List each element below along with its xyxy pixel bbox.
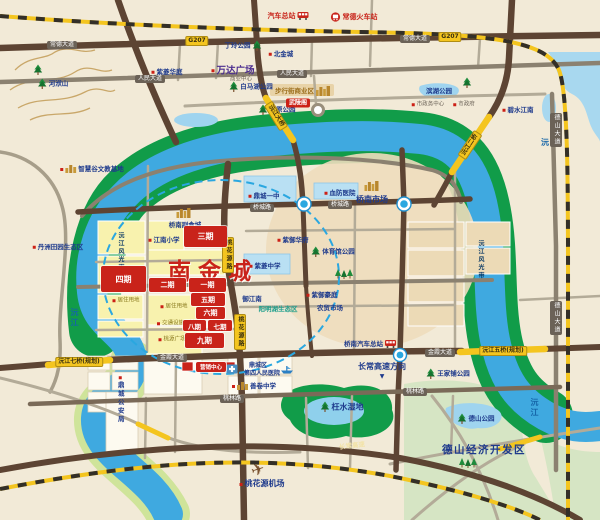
map-label: 河洑山 — [38, 79, 69, 90]
map-label: 鼎城公安局 — [117, 376, 124, 424]
bridge-plate: 沅江五桥(规划) — [479, 346, 527, 356]
label-text: 智慧谷文教基地 — [78, 166, 124, 173]
arrow-down-icon: ▼ — [380, 374, 385, 380]
building-icon — [65, 165, 76, 173]
tree-icon — [253, 41, 262, 52]
poi-dot — [119, 376, 122, 379]
road-plate: 金霞大道 — [157, 354, 187, 362]
label-text: 长常高速方向 — [358, 363, 406, 371]
label-text: 德山大道 — [553, 114, 559, 146]
trees-icon — [335, 269, 353, 279]
road-plate: 常德大道 — [400, 35, 430, 43]
label-text: 常德大道 — [403, 36, 427, 42]
poi-dot — [33, 246, 36, 249]
poi-dot — [249, 195, 252, 198]
label-text: 桃源广场 — [163, 337, 185, 343]
label-text: 德山公园 — [469, 416, 495, 423]
tree-icon — [321, 402, 330, 413]
map-label: 江南小学 — [149, 237, 180, 244]
tree-icon — [311, 247, 320, 258]
hospital-icon — [227, 365, 238, 374]
poi-dot — [250, 265, 253, 268]
label-text: 鼎城公安局 — [117, 381, 124, 424]
label-text: 阳明湖生态区 — [259, 306, 298, 313]
phase-block: 五期 — [191, 293, 225, 306]
road-plate: 桃林路 — [220, 395, 244, 403]
label-text: 丁玲公园 — [225, 43, 251, 50]
poi-dot — [157, 323, 160, 326]
road-plate: 德山大道 — [550, 301, 562, 335]
map-label: 丁玲公园 — [225, 41, 262, 52]
label-text: 丹洲田园生态区 — [38, 244, 84, 251]
tree-icon — [34, 65, 43, 76]
bridge-plate: 沅江二桥 — [457, 130, 482, 160]
tree-icon — [229, 82, 238, 93]
road-plate: 德山大道 — [550, 113, 562, 147]
trees-icon — [335, 269, 353, 279]
label-text: 沅江五桥(规划) — [482, 348, 524, 354]
label-text: 常德大道 — [50, 42, 74, 48]
label-text: 桥城路 — [253, 205, 271, 211]
label-text: G207 — [188, 38, 205, 44]
road-plate: G207 — [438, 32, 461, 42]
map-labels-layer: 汽车总站常德火车站丁玲公园北金城万达广场商业中心紫菱华庭白马湖公园屈原公园河洑山… — [0, 0, 600, 520]
label-text: 鼎城区 — [249, 363, 267, 369]
railway-station-label: 常德火车站 — [331, 12, 378, 22]
poi-dot — [412, 104, 415, 107]
map-label: 紫菱中学 — [250, 263, 281, 270]
label-text: 滨湖公园 — [426, 88, 452, 95]
poi-dot — [60, 168, 63, 171]
map-label: 桃源广场 — [158, 337, 185, 343]
label-text: 桥南市场 — [356, 196, 388, 204]
skyline-gold-icon — [177, 208, 192, 218]
map-label: 北金城 — [269, 51, 294, 58]
label-text: 沅江二桥 — [461, 133, 479, 156]
poi-dot — [269, 53, 272, 56]
label-text: 居住用地 — [117, 298, 139, 304]
label-text: 沅江风光带 — [477, 240, 483, 280]
bus-icon — [385, 340, 396, 348]
label-text: 金霞大道 — [428, 350, 452, 356]
road-plate: 桥城路 — [328, 201, 352, 209]
tree-icon — [458, 414, 467, 425]
label-text: 桃林路 — [406, 389, 424, 395]
building-icon — [237, 382, 248, 390]
road-plate: 桥城路 — [250, 204, 274, 212]
label-text: 武陵阁 — [289, 100, 307, 106]
bus-terminal-label: 汽车总站 — [268, 12, 309, 20]
road-plate: 桃林路 — [403, 388, 427, 396]
phase-block: 一期 — [189, 278, 226, 292]
road-plate: 人民大道 — [277, 70, 307, 78]
poi-dot — [232, 385, 235, 388]
label-text: 紫御豪庭 — [312, 292, 338, 299]
phase-block: 二期 — [149, 278, 186, 292]
poi-dot — [278, 239, 281, 242]
trees-icon — [459, 458, 477, 468]
map-label: 紫御豪庭 — [307, 292, 338, 299]
label-text: 人民大道 — [280, 71, 304, 77]
map-label: 御江南 — [242, 296, 262, 303]
river-label: 沅江 — [70, 308, 78, 328]
river-label: 沅江 — [530, 398, 538, 418]
map-label: 长常高速方向 — [358, 363, 406, 371]
map-label: 鼎城一中 — [249, 193, 280, 200]
label-text: 桥城路 — [331, 202, 349, 208]
road-plate: 桃花源路 — [234, 314, 246, 350]
label-text: 汽车总站 — [268, 13, 296, 20]
label-text: 长常高速 — [339, 441, 366, 451]
tree-icon — [463, 78, 472, 89]
label-text: 居住用地 — [165, 304, 187, 310]
label-text: 碧水江南 — [508, 107, 534, 114]
label-text: 江南小学 — [154, 237, 180, 244]
label-text: 沅江 — [530, 398, 538, 418]
map-label: 王家铺公园 — [426, 369, 470, 380]
ship-icon — [280, 366, 294, 375]
bus-icon — [298, 12, 309, 20]
poi-dot — [149, 239, 152, 242]
plane-icon: ✈ — [251, 462, 264, 478]
skyline-gold-icon — [365, 181, 380, 191]
phase-block: 七期 — [208, 320, 232, 331]
phase-block: 六期 — [196, 307, 225, 319]
poi-dot — [503, 109, 506, 112]
label-text: 沅江 — [70, 308, 78, 328]
label-text: 沅江七桥(规划) — [58, 359, 100, 365]
poi-dot — [240, 483, 243, 486]
tree-icon — [34, 65, 43, 76]
map-label: 桃花源机场 — [240, 480, 285, 488]
map-label: 鼎城区 — [249, 363, 267, 369]
map-label: 居住用地 — [160, 304, 187, 310]
train-icon — [331, 12, 341, 22]
label-text: 白马湖公园 — [240, 84, 273, 91]
phase-block: 九期 — [185, 333, 224, 348]
label-text: 人民大道 — [138, 76, 162, 82]
map-label: 滨湖公园 — [426, 88, 452, 95]
phase-block: 八期 — [183, 320, 206, 331]
poi-dot — [158, 339, 161, 342]
label-text: 常德火车站 — [343, 14, 378, 21]
label-text: 紫菱中学 — [255, 263, 281, 270]
map-label: 阳明湖生态区 — [259, 306, 298, 313]
plane-icon: ✈ — [251, 462, 264, 478]
map-label: 市政务中心 — [412, 102, 445, 108]
map-label: 德山公园 — [458, 414, 495, 425]
label-text: 桃花源机场 — [245, 480, 285, 488]
wanda-plaza-label: 万达广场 — [211, 66, 254, 76]
phase-block: 四期 — [101, 266, 146, 292]
poi-dot — [211, 70, 214, 73]
tree-icon — [463, 78, 472, 89]
hospital-icon — [227, 365, 238, 374]
map-label: 血防医院 — [325, 190, 356, 197]
expressway-label: 长常高速 — [339, 441, 366, 451]
phase-block: 三期 — [184, 226, 227, 247]
map-label: 碧水江南 — [503, 107, 534, 114]
map-label: 丹洲田园生态区 — [33, 244, 84, 251]
road-plate: 金霞大道 — [425, 349, 455, 357]
map-label: 德山经济开发区 — [442, 445, 526, 456]
map-label: 智慧谷文教基地 — [60, 165, 124, 173]
label-text: 河洑山 — [49, 81, 69, 88]
label-text: 桃林路 — [223, 396, 241, 402]
label-text: 紫御华府 — [283, 237, 309, 244]
poi-dot — [307, 294, 310, 297]
wulingge-chip: 武陵阁 — [286, 99, 310, 108]
road-plate: 常德大道 — [47, 41, 77, 49]
map-label: 步行街商业区 — [275, 86, 331, 96]
road-plate: 人民大道 — [135, 75, 165, 83]
ship-icon — [280, 366, 294, 375]
label-text: 血防医院 — [330, 190, 356, 197]
label-text: 金霞大道 — [160, 355, 184, 361]
label-text: 德山经济开发区 — [442, 445, 526, 456]
map-label: 第四人民医院 — [244, 371, 280, 377]
label-text: 体育馆公园 — [322, 249, 355, 256]
poi-dot — [152, 71, 155, 74]
label-text: 市政务中心 — [417, 102, 445, 108]
label-text: 善卷中学 — [250, 383, 276, 390]
map-label: 居住用地 — [112, 298, 139, 304]
label-text: 步行街商业区 — [275, 88, 314, 95]
label-text: 御江南 — [242, 296, 262, 303]
map-label: 市政府 — [453, 102, 475, 108]
bridge-plate: 沅江七桥(规划) — [55, 357, 103, 367]
tree-icon — [426, 369, 435, 380]
label-text: 农贸市场 — [317, 305, 343, 312]
poi-dot — [453, 104, 456, 107]
map-label: 农贸市场 — [317, 305, 343, 312]
road-plate: G207 — [185, 36, 208, 46]
label-text: 德山大道 — [553, 302, 559, 334]
label-text: 市政府 — [458, 102, 475, 108]
label-text: 枉水湿地 — [332, 403, 364, 411]
phase-block: 营销中心 — [196, 362, 226, 372]
map-label: 紫御华府 — [278, 237, 309, 244]
skyline-gold-icon — [177, 208, 192, 218]
map-label: 善卷中学 — [232, 382, 276, 390]
location-map: 南金城 汽车总站常德火车站丁玲公园北金城万达广场商业中心紫菱华庭白马湖公园屈原公… — [0, 0, 600, 520]
map-label: 体育馆公园 — [311, 247, 355, 258]
map-label: 白马湖公园 — [229, 82, 273, 93]
poi-dot — [325, 192, 328, 195]
label-text: 北金城 — [274, 51, 294, 58]
label-text: 鼎城一中 — [254, 193, 280, 200]
label-text: 第四人民医院 — [244, 371, 280, 377]
label-text: ▼ — [380, 374, 385, 380]
map-label: 枉水湿地 — [321, 402, 364, 413]
label-text: G207 — [441, 34, 458, 40]
label-text: 桃花源路 — [237, 316, 243, 348]
poi-dot — [112, 300, 115, 303]
poi-dot — [160, 306, 163, 309]
skyline-gold-icon — [316, 86, 331, 96]
tree-icon — [38, 79, 47, 90]
map-label: 沅江风光带 — [477, 240, 483, 280]
map-label: 桥南汽车总站 — [344, 340, 396, 348]
label-text: 桥南汽车总站 — [344, 341, 383, 348]
trees-icon — [459, 458, 477, 468]
skyline-gold-icon — [365, 181, 380, 191]
label-text: 万达广场 — [216, 66, 254, 76]
map-label: 桥南市场 — [356, 196, 388, 204]
label-text: 王家铺公园 — [437, 371, 470, 378]
